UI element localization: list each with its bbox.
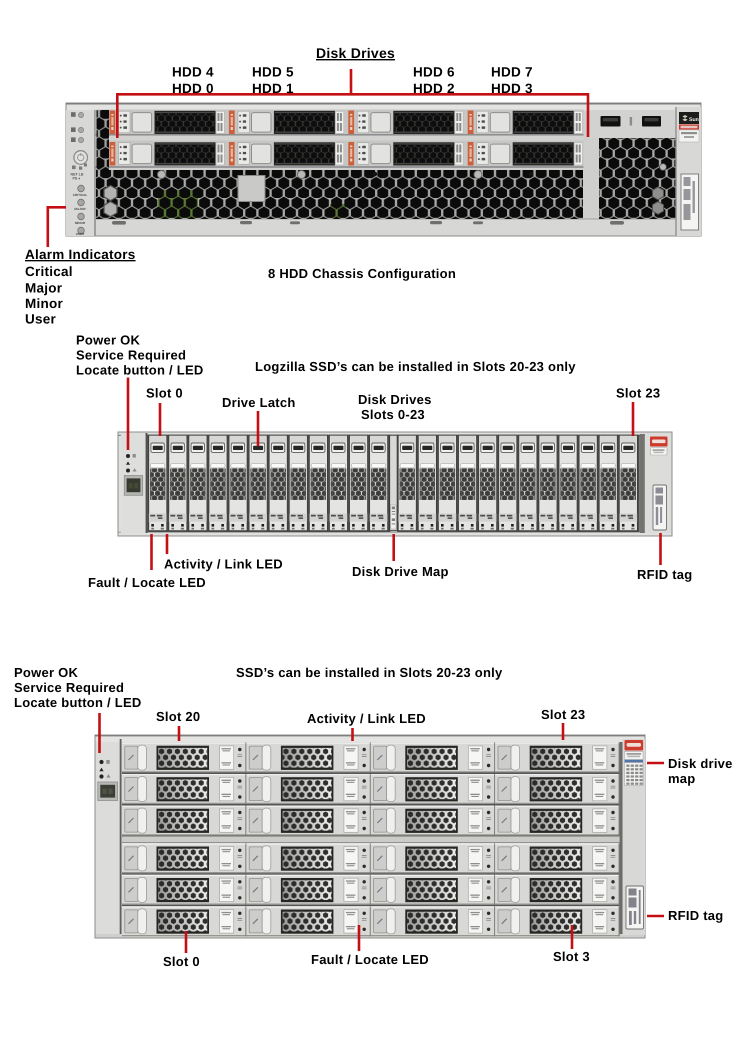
svg-text:Slot 20: Slot 20	[156, 709, 200, 724]
svg-text:Fault / Locate LED: Fault / Locate LED	[88, 575, 206, 590]
svg-text:map: map	[668, 771, 695, 786]
svg-text:HDD 5: HDD 5	[252, 65, 294, 80]
svg-text:PS ●: PS ●	[73, 177, 81, 181]
svg-text:HDD 6: HDD 6	[413, 65, 455, 80]
svg-text:Disk Drives: Disk Drives	[316, 45, 395, 61]
svg-text:Service Required: Service Required	[76, 348, 186, 363]
svg-text:Slot 3: Slot 3	[553, 949, 590, 964]
svg-text:RFID tag: RFID tag	[668, 908, 723, 923]
svg-text:Minor: Minor	[25, 296, 63, 311]
svg-text:Activity / Link LED: Activity / Link LED	[307, 711, 426, 726]
svg-text:Alarm Indicators: Alarm Indicators	[25, 247, 136, 262]
svg-text:Slot 0: Slot 0	[163, 954, 200, 969]
svg-text:Power OK: Power OK	[14, 665, 78, 680]
svg-text:User: User	[25, 312, 57, 327]
svg-text:Service Required: Service Required	[14, 680, 124, 695]
svg-text:Logzilla SSD’s can be installe: Logzilla SSD’s can be installed in Slots…	[255, 359, 576, 374]
svg-text:HDD 7: HDD 7	[491, 65, 533, 80]
svg-text:CRITICAL: CRITICAL	[73, 193, 88, 197]
svg-text:MAJOR: MAJOR	[74, 207, 86, 211]
svg-text:RFID tag: RFID tag	[637, 567, 692, 582]
svg-text:Activity / Link LED: Activity / Link LED	[164, 557, 283, 572]
svg-text:Sun: Sun	[689, 117, 699, 123]
svg-text:Major: Major	[25, 281, 63, 296]
svg-text:Locate button / LED: Locate button / LED	[76, 363, 204, 378]
svg-text:Fault / Locate LED: Fault / Locate LED	[311, 952, 429, 967]
svg-text:HDD 2: HDD 2	[413, 81, 455, 96]
svg-text:Slot 23: Slot 23	[616, 386, 660, 401]
svg-text:Drive Latch: Drive Latch	[222, 395, 296, 410]
svg-text:Disk drive: Disk drive	[668, 756, 733, 771]
svg-text:SSD’s can be installed in Slot: SSD’s can be installed in Slots 20-23 on…	[236, 665, 503, 680]
svg-text:USER: USER	[76, 232, 85, 236]
svg-text:HDD 4: HDD 4	[172, 65, 214, 80]
svg-text:8 HDD Chassis Configuration: 8 HDD Chassis Configuration	[268, 266, 456, 281]
svg-text:HDD 1: HDD 1	[252, 81, 294, 96]
svg-text:Disk Drives: Disk Drives	[358, 392, 432, 407]
svg-text:Power OK: Power OK	[76, 333, 140, 348]
svg-text:Disk Drive Map: Disk Drive Map	[352, 564, 449, 579]
svg-text:Slots 0-23: Slots 0-23	[361, 407, 425, 422]
svg-text:HDD 3: HDD 3	[491, 81, 533, 96]
svg-text:Slot 23: Slot 23	[541, 707, 585, 722]
svg-text:Slot 0: Slot 0	[146, 386, 183, 401]
svg-text:MINOR: MINOR	[75, 221, 86, 225]
svg-text:HDD 0: HDD 0	[172, 81, 214, 96]
svg-text:Critical: Critical	[25, 264, 73, 279]
svg-text:Locate button / LED: Locate button / LED	[14, 695, 142, 710]
